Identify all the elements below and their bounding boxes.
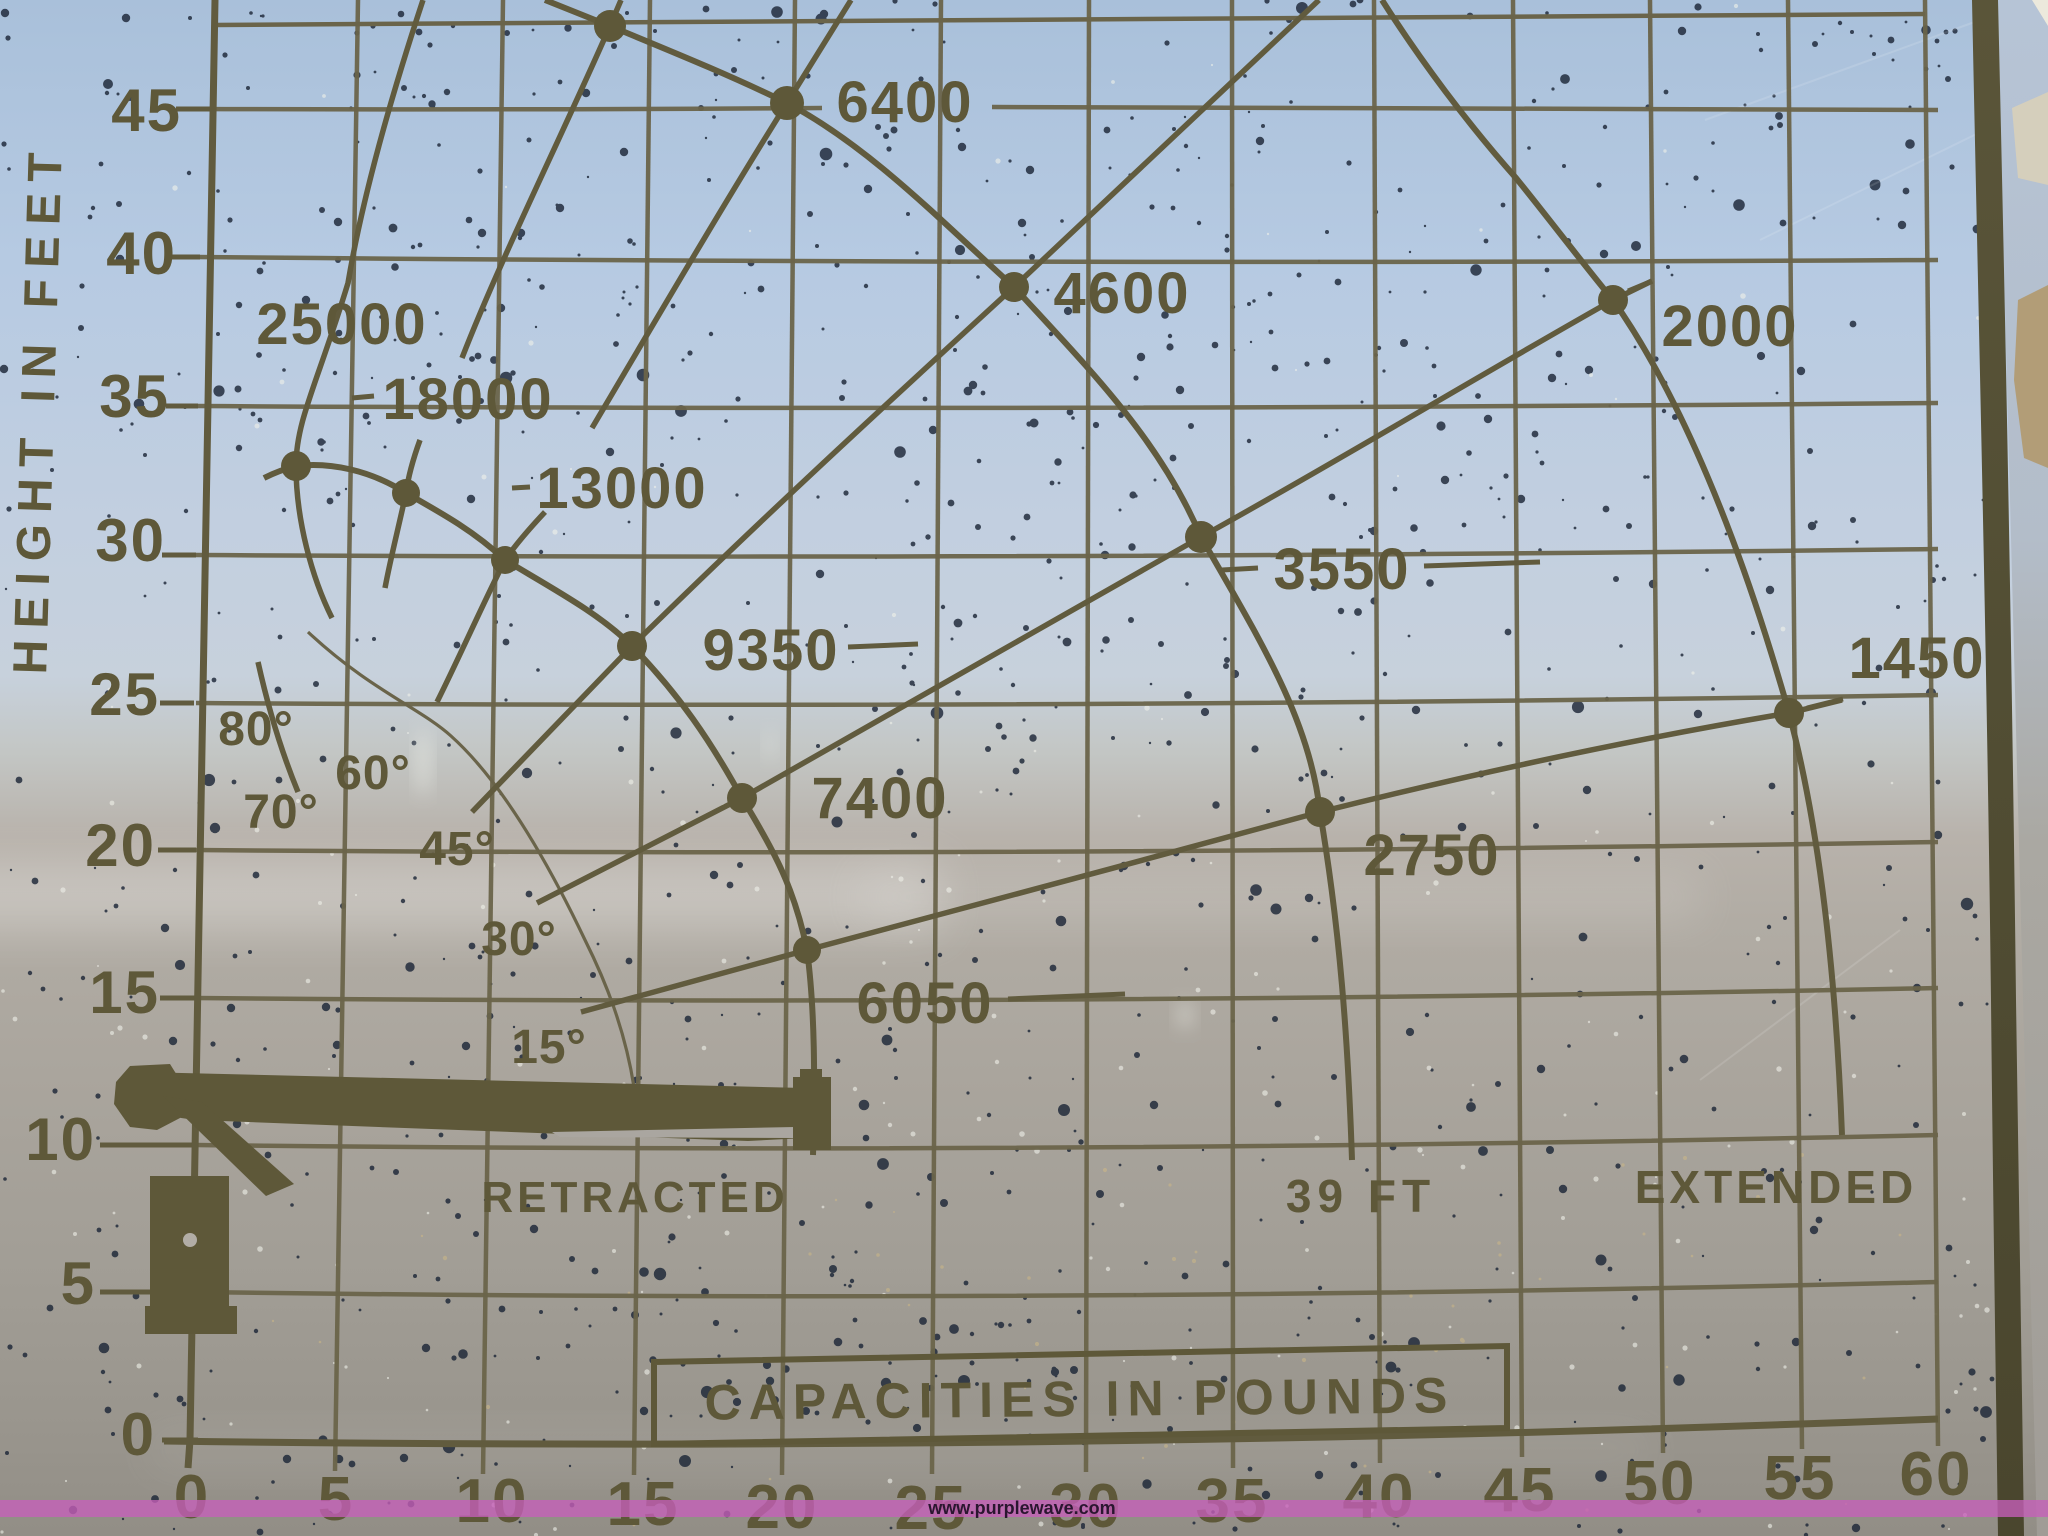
svg-text:70°: 70° [243,786,319,839]
svg-text:0: 0 [174,1463,210,1532]
svg-text:30: 30 [95,507,166,574]
svg-text:40: 40 [1343,1462,1416,1531]
svg-text:15°: 15° [511,1021,587,1074]
svg-text:2750: 2750 [1363,823,1500,888]
svg-text:45: 45 [111,77,182,144]
svg-text:www.purplewave.com: www.purplewave.com [927,1498,1115,1518]
svg-text:0: 0 [121,1401,156,1468]
svg-text:2000: 2000 [1661,294,1798,359]
svg-text:3550: 3550 [1273,537,1410,602]
svg-text:9350: 9350 [702,618,839,683]
svg-text:1450: 1450 [1848,626,1985,691]
svg-text:80°: 80° [218,703,294,756]
svg-text:60°: 60° [335,747,411,800]
svg-text:40: 40 [106,220,177,287]
svg-text:60: 60 [1900,1440,1973,1509]
svg-text:20: 20 [85,812,156,879]
svg-text:5: 5 [61,1250,96,1317]
svg-text:EXTENDED: EXTENDED [1635,1161,1917,1213]
svg-text:4600: 4600 [1053,261,1190,326]
svg-text:6050: 6050 [856,971,993,1036]
svg-text:CAPACITIES IN POUNDS: CAPACITIES IN POUNDS [704,1367,1455,1430]
svg-text:5: 5 [318,1465,354,1534]
svg-text:13000: 13000 [536,456,707,521]
svg-text:39 FT: 39 FT [1286,1170,1436,1222]
svg-text:15: 15 [89,959,160,1026]
svg-text:18000: 18000 [382,367,553,432]
svg-text:25: 25 [89,661,160,728]
svg-text:RETRACTED: RETRACTED [481,1173,788,1222]
svg-text:7400: 7400 [811,766,948,831]
svg-text:30°: 30° [481,913,557,966]
svg-text:35: 35 [99,363,170,430]
svg-text:10: 10 [25,1106,96,1173]
svg-text:6400: 6400 [836,70,973,135]
svg-text:45°: 45° [419,823,495,876]
svg-text:25000: 25000 [256,292,427,357]
